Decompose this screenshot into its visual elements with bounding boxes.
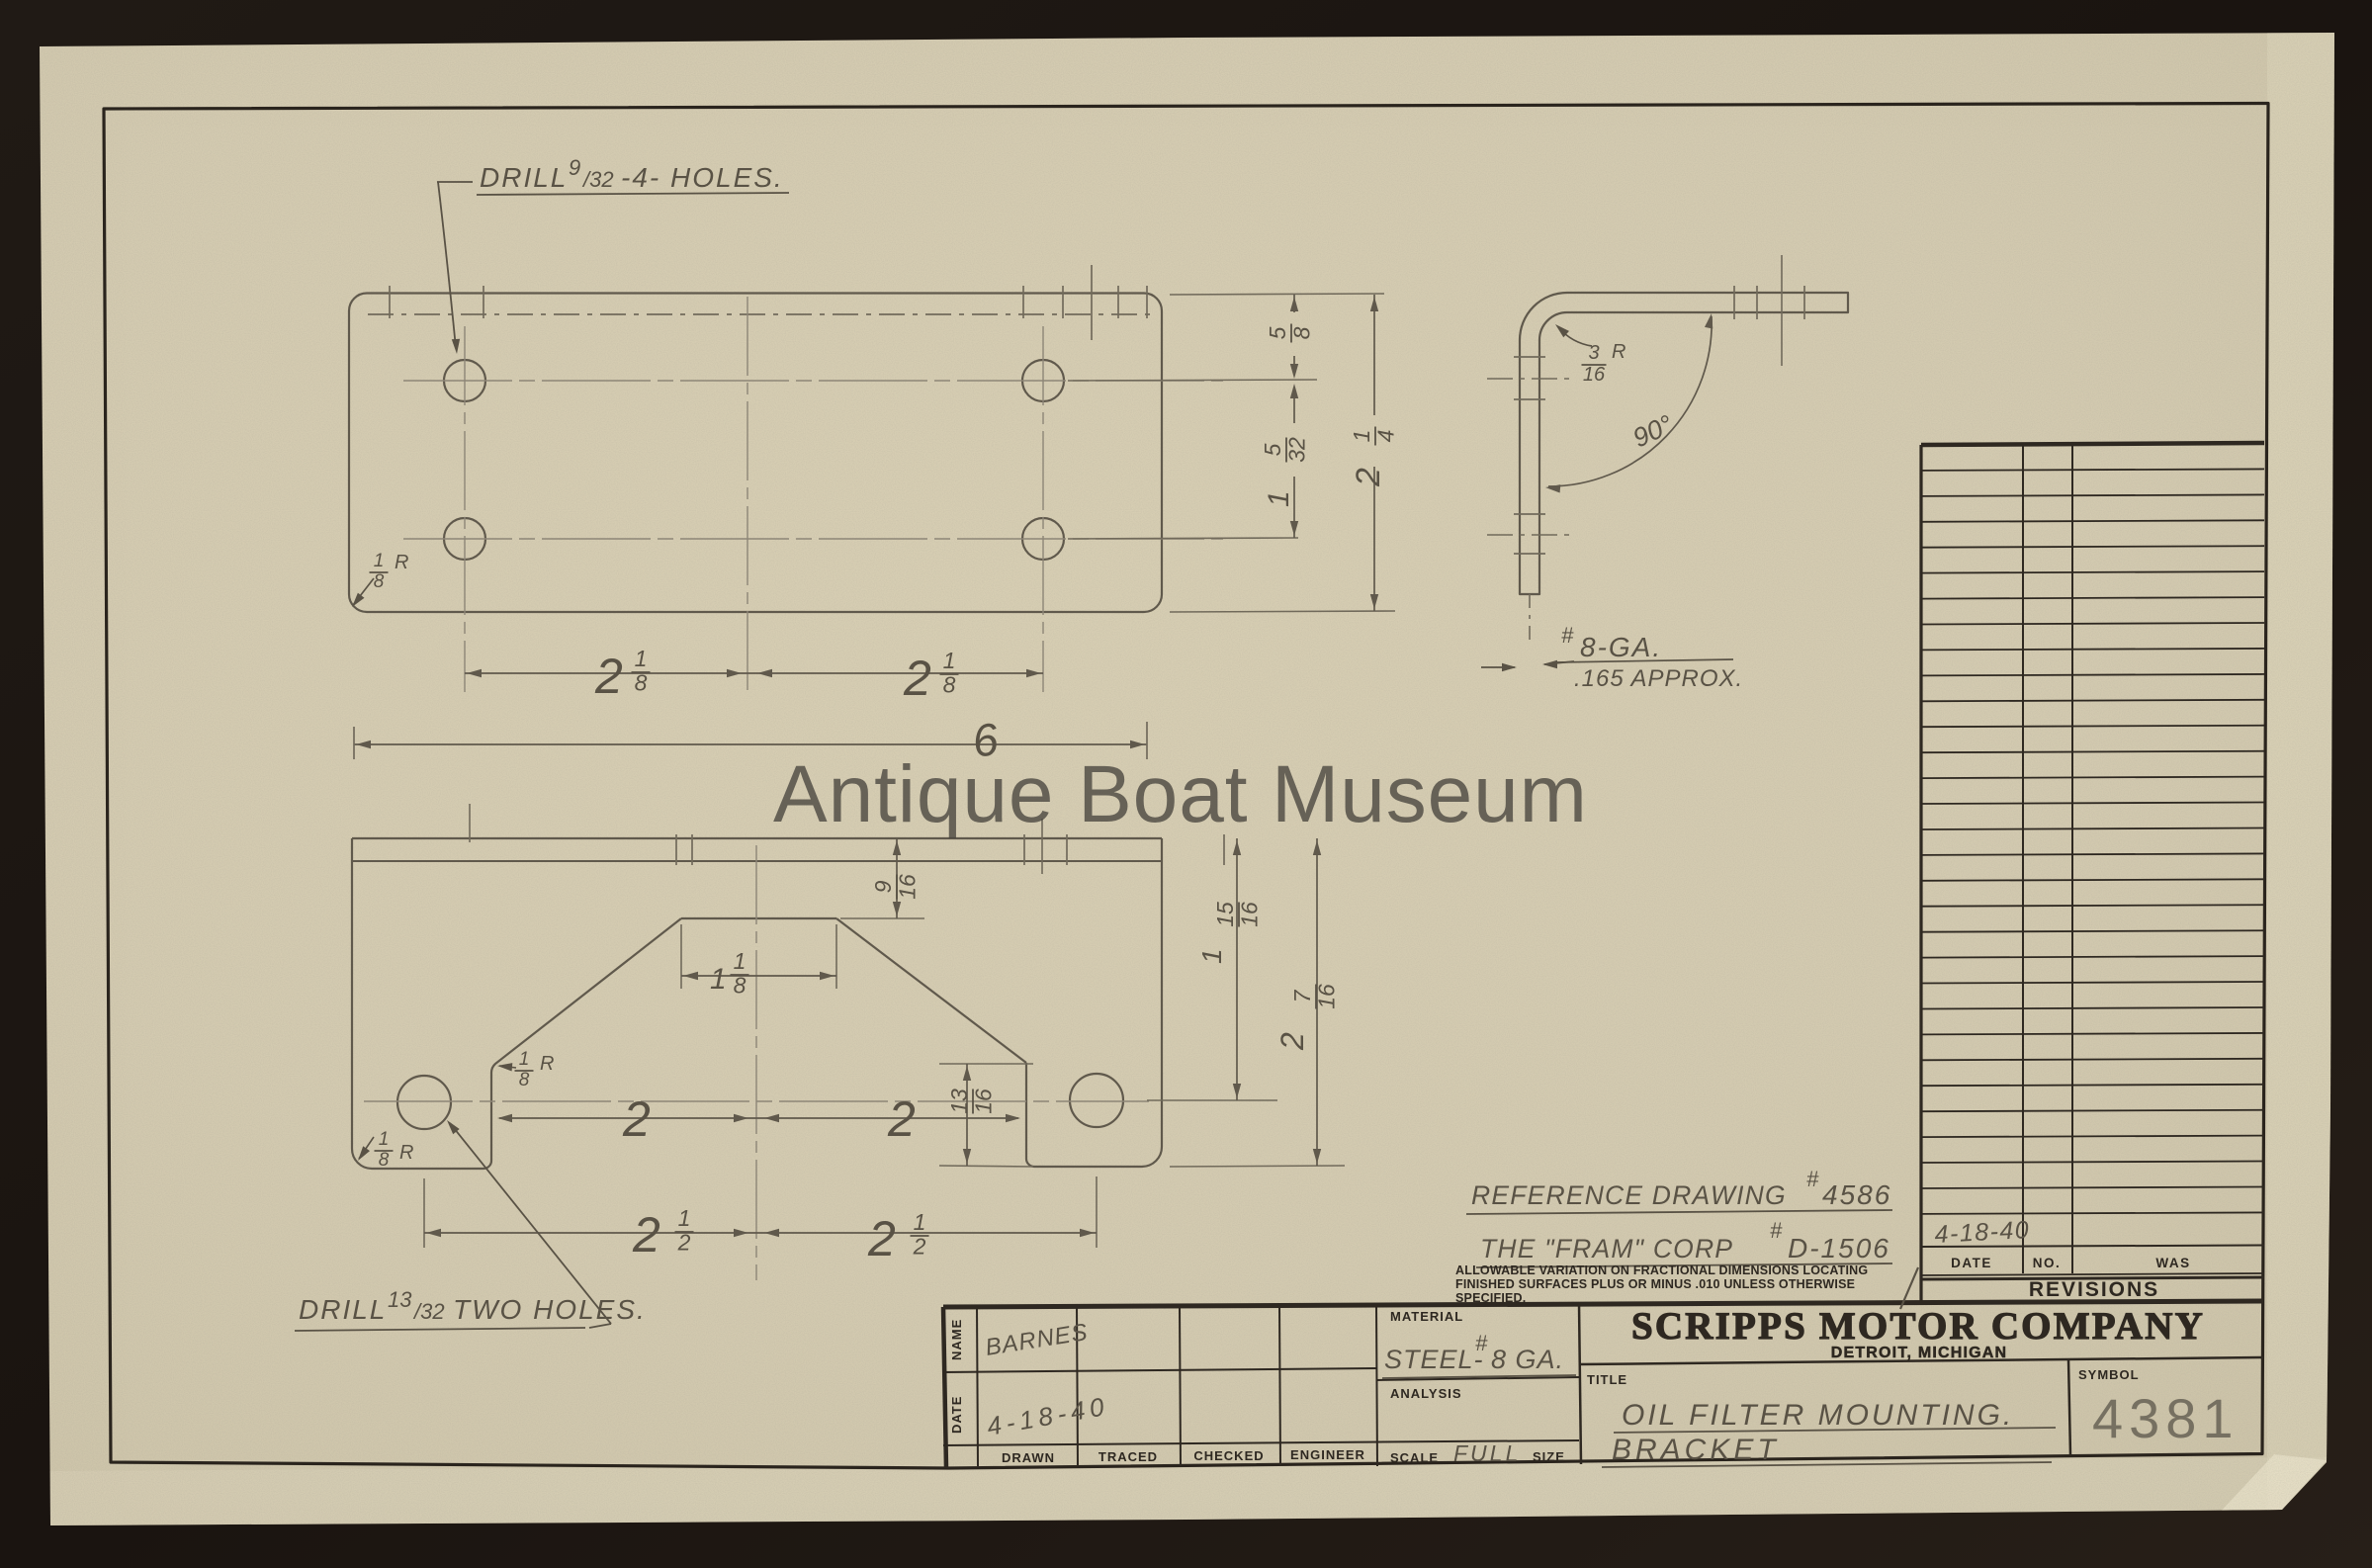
svg-text:9: 9	[870, 880, 896, 893]
svg-text:NAME: NAME	[949, 1319, 964, 1360]
svg-text:SPECIFIED.: SPECIFIED.	[1455, 1291, 1526, 1305]
svg-text:9: 9	[569, 155, 580, 180]
svg-text:1: 1	[1349, 430, 1374, 443]
svg-text:1: 1	[678, 1205, 691, 1231]
svg-text:1: 1	[374, 551, 385, 571]
svg-text:8: 8	[635, 670, 648, 696]
svg-text:ANALYSIS: ANALYSIS	[1390, 1386, 1462, 1401]
svg-text:BRACKET: BRACKET	[1612, 1434, 1780, 1466]
svg-text:8: 8	[734, 973, 747, 999]
svg-text:CHECKED: CHECKED	[1193, 1448, 1264, 1463]
svg-text:DATE: DATE	[949, 1396, 964, 1434]
svg-text:4381: 4381	[2092, 1387, 2240, 1449]
svg-text:DATE: DATE	[1951, 1256, 1992, 1270]
svg-text:DRAWN: DRAWN	[1002, 1450, 1055, 1465]
svg-text:ALLOWABLE VARIATION ON FRAC: ALLOWABLE VARIATION ON FRACTIONAL DIMENS…	[1455, 1263, 1868, 1277]
svg-text:2: 2	[887, 1091, 916, 1147]
svg-text:1: 1	[519, 1049, 530, 1070]
svg-text:.165 APPROX.: .165 APPROX.	[1574, 665, 1743, 692]
svg-text:MATERIAL: MATERIAL	[1390, 1309, 1463, 1324]
svg-text:4: 4	[1373, 430, 1399, 443]
svg-text:2: 2	[1350, 468, 1387, 487]
svg-text:2: 2	[903, 651, 931, 706]
svg-text:1: 1	[914, 1209, 926, 1235]
svg-text:WAS: WAS	[2155, 1256, 2190, 1270]
svg-text:4586: 4586	[1822, 1179, 1891, 1210]
svg-text:16: 16	[895, 874, 921, 900]
svg-text:#: #	[1561, 623, 1574, 648]
svg-text:TITLE: TITLE	[1587, 1372, 1627, 1387]
svg-text:/32: /32	[581, 167, 614, 192]
svg-text:8: 8	[519, 1070, 530, 1090]
svg-text:5: 5	[1265, 326, 1290, 339]
svg-text:16: 16	[971, 1089, 997, 1114]
svg-text:-4- HOLES.: -4- HOLES.	[621, 162, 784, 193]
svg-text:FINISHED SURFACES PLUS OR: FINISHED SURFACES PLUS OR MINUS .010 UNL…	[1455, 1277, 1855, 1291]
svg-text:#: #	[1770, 1218, 1783, 1243]
svg-text:1: 1	[1196, 948, 1227, 964]
svg-text:2: 2	[622, 1091, 651, 1147]
svg-text:STEEL-: STEEL-	[1384, 1345, 1484, 1374]
svg-text:2: 2	[867, 1211, 896, 1266]
svg-text:1: 1	[1263, 490, 1295, 507]
svg-text:5: 5	[1260, 443, 1285, 456]
svg-text:FULL: FULL	[1453, 1440, 1521, 1466]
svg-text:SYMBOL: SYMBOL	[2078, 1367, 2140, 1382]
svg-text:Antique Boat Museum: Antique Boat Museum	[773, 749, 1588, 839]
svg-text:#: #	[1806, 1167, 1819, 1191]
svg-text:1: 1	[379, 1129, 390, 1150]
svg-text:REFERENCE DRAWING: REFERENCE DRAWING	[1471, 1180, 1787, 1210]
svg-text:ENGINEER: ENGINEER	[1290, 1447, 1365, 1462]
svg-text:15: 15	[1212, 902, 1238, 927]
svg-text:R: R	[540, 1053, 554, 1075]
svg-text:8: 8	[379, 1150, 390, 1171]
svg-text:1: 1	[710, 963, 727, 996]
svg-text:R: R	[399, 1142, 413, 1164]
svg-text:THE "FRAM" CORP: THE "FRAM" CORP	[1480, 1234, 1733, 1263]
svg-text:16: 16	[1237, 902, 1263, 927]
svg-text:2: 2	[594, 649, 623, 704]
svg-text:OIL FILTER MOUNTING.: OIL FILTER MOUNTING.	[1622, 1399, 2014, 1432]
svg-text:13: 13	[388, 1287, 412, 1312]
svg-text:2: 2	[913, 1234, 926, 1260]
svg-text:TWO HOLES.: TWO HOLES.	[453, 1294, 647, 1325]
svg-text:R: R	[395, 552, 408, 573]
svg-text:REVISIONS: REVISIONS	[2029, 1278, 2159, 1301]
svg-text:16: 16	[1314, 984, 1340, 1009]
svg-text:2: 2	[1274, 1032, 1310, 1051]
svg-text:8-GA.: 8-GA.	[1580, 632, 1662, 662]
svg-text:8: 8	[943, 672, 956, 698]
svg-text:1: 1	[734, 948, 747, 974]
svg-text:SIZE: SIZE	[1533, 1449, 1565, 1464]
svg-text:32: 32	[1284, 437, 1310, 463]
svg-text:/32: /32	[412, 1299, 445, 1324]
svg-text:16: 16	[1583, 364, 1606, 386]
svg-text:TRACED: TRACED	[1098, 1449, 1158, 1464]
svg-text:DRILL: DRILL	[480, 162, 568, 193]
svg-text:7: 7	[1289, 989, 1315, 1002]
svg-text:#: #	[1475, 1331, 1488, 1355]
svg-text:13: 13	[946, 1089, 972, 1114]
svg-text:2: 2	[632, 1207, 660, 1263]
svg-text:8: 8	[374, 571, 385, 592]
svg-text:D-1506: D-1506	[1788, 1233, 1890, 1263]
svg-text:8: 8	[1289, 326, 1315, 339]
svg-text:1: 1	[635, 646, 648, 671]
svg-text:R: R	[1612, 341, 1625, 363]
svg-text:2: 2	[677, 1230, 691, 1256]
svg-text:SCRIPPS MOTOR COMPANY: SCRIPPS MOTOR COMPANY	[1631, 1305, 2205, 1348]
svg-text:8 GA.: 8 GA.	[1491, 1345, 1564, 1374]
svg-text:NO.: NO.	[2033, 1256, 2062, 1270]
svg-text:SCALE: SCALE	[1390, 1450, 1439, 1465]
svg-text:DETROIT, MICHIGAN: DETROIT, MICHIGAN	[1831, 1345, 2008, 1361]
svg-text:DRILL: DRILL	[299, 1294, 387, 1325]
svg-text:1: 1	[943, 648, 956, 673]
svg-text:4-18-40: 4-18-40	[1934, 1216, 2031, 1249]
